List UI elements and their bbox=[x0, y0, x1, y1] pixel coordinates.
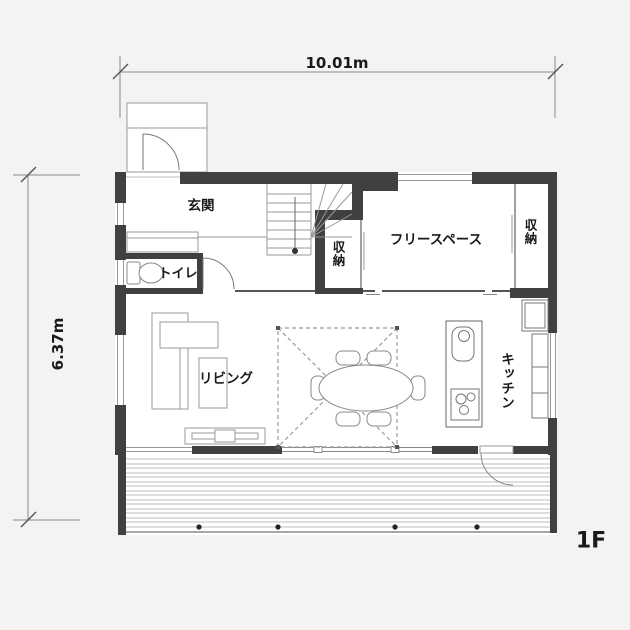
faucet bbox=[459, 331, 470, 342]
floor-plan-drawing bbox=[0, 0, 630, 630]
room-label-storage-left: 収納 bbox=[329, 241, 348, 268]
room-label-storage-right: 収納 bbox=[521, 219, 540, 246]
room-label-living: リビング bbox=[199, 367, 253, 387]
cooktop bbox=[451, 389, 479, 420]
room-label-toilet: トイレ bbox=[158, 263, 197, 282]
height-dimension-label: 6.37m bbox=[49, 318, 67, 371]
floor-label: 1F bbox=[576, 529, 606, 554]
kitchen-counter bbox=[532, 334, 548, 418]
refrigerator bbox=[522, 300, 548, 331]
floor-plan-page: 10.01m 6.37m 玄関 トイレ 収納 フリースペース 収納 リビング キ… bbox=[0, 0, 630, 630]
room-label-free-space: フリースペース bbox=[390, 228, 482, 248]
shoe-cabinet bbox=[127, 232, 198, 252]
room-label-kitchen: キッチン bbox=[496, 352, 516, 410]
kitchen-island bbox=[446, 321, 482, 427]
tv-board bbox=[185, 428, 265, 444]
width-dimension-label: 10.01m bbox=[305, 54, 368, 72]
room-label-genkan: 玄関 bbox=[188, 194, 215, 214]
